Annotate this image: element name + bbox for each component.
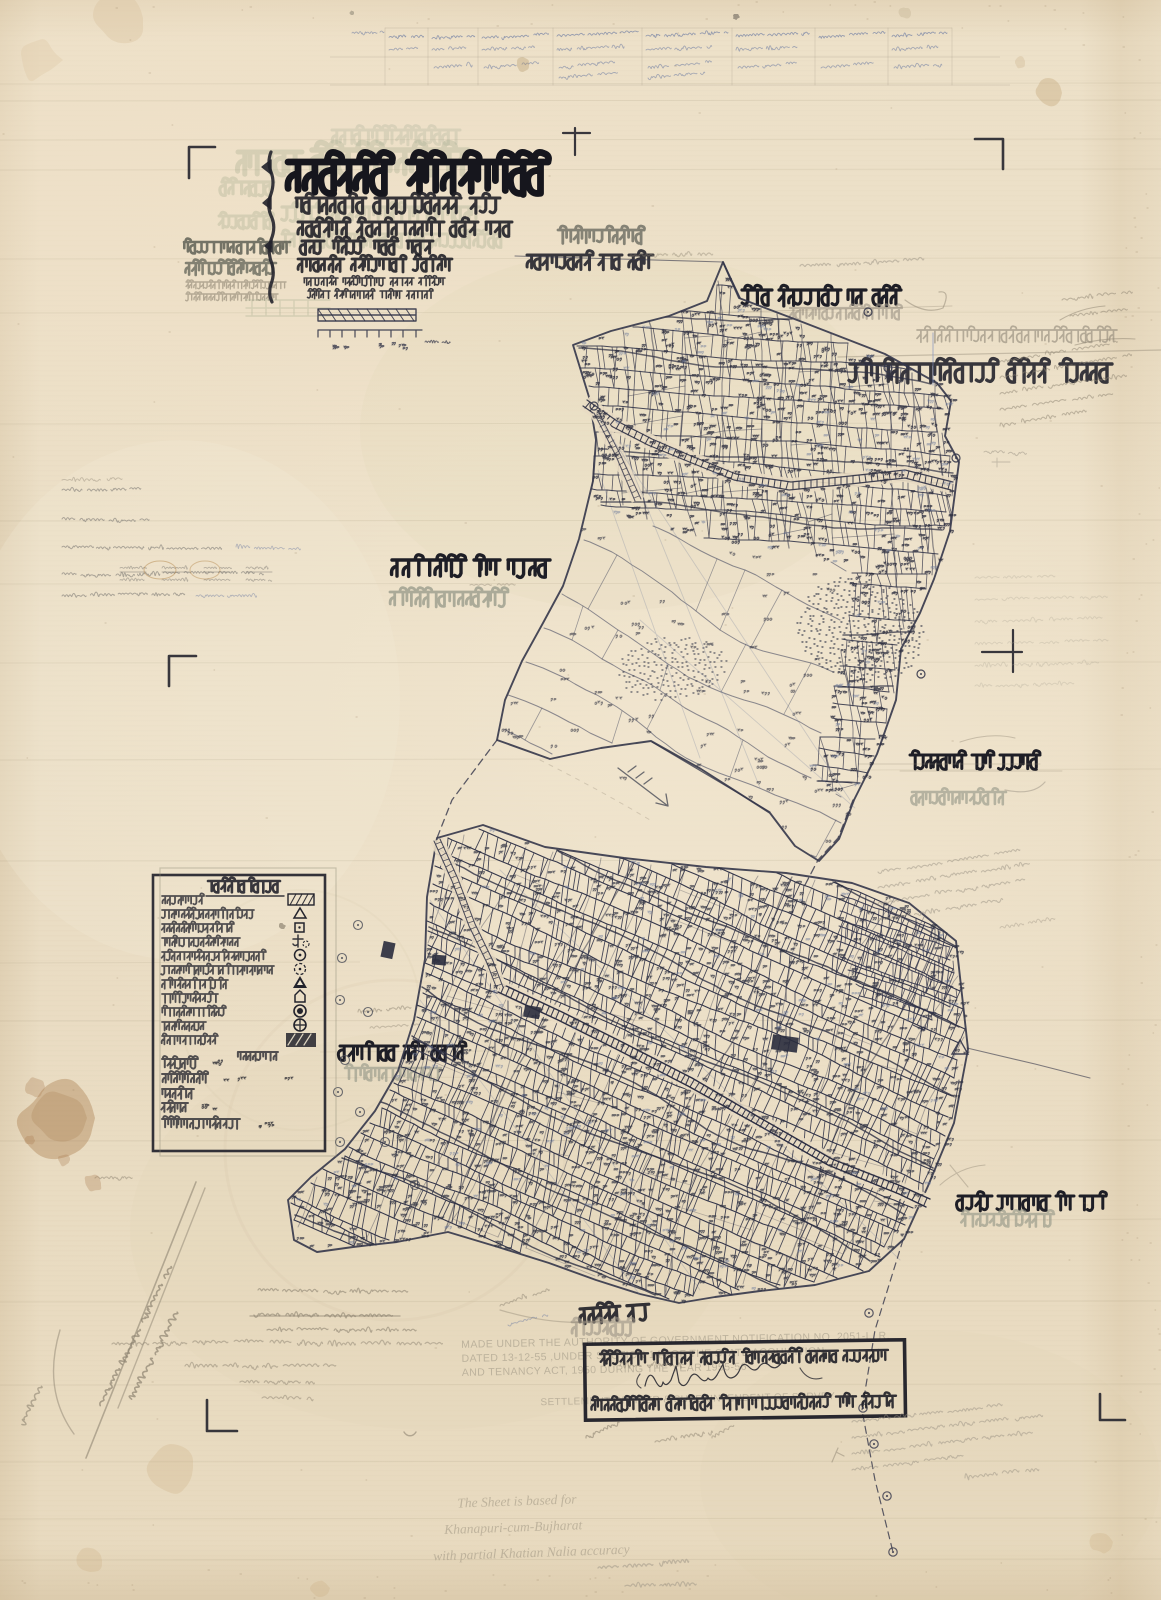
svg-text:with partial Khatian Nalia acc: with partial Khatian Nalia accuracy (433, 1542, 630, 1564)
svg-text:Khanapuri-cum-Bujharat: Khanapuri-cum-Bujharat (443, 1517, 584, 1537)
svg-text:The Sheet is based for: The Sheet is based for (457, 1491, 577, 1510)
